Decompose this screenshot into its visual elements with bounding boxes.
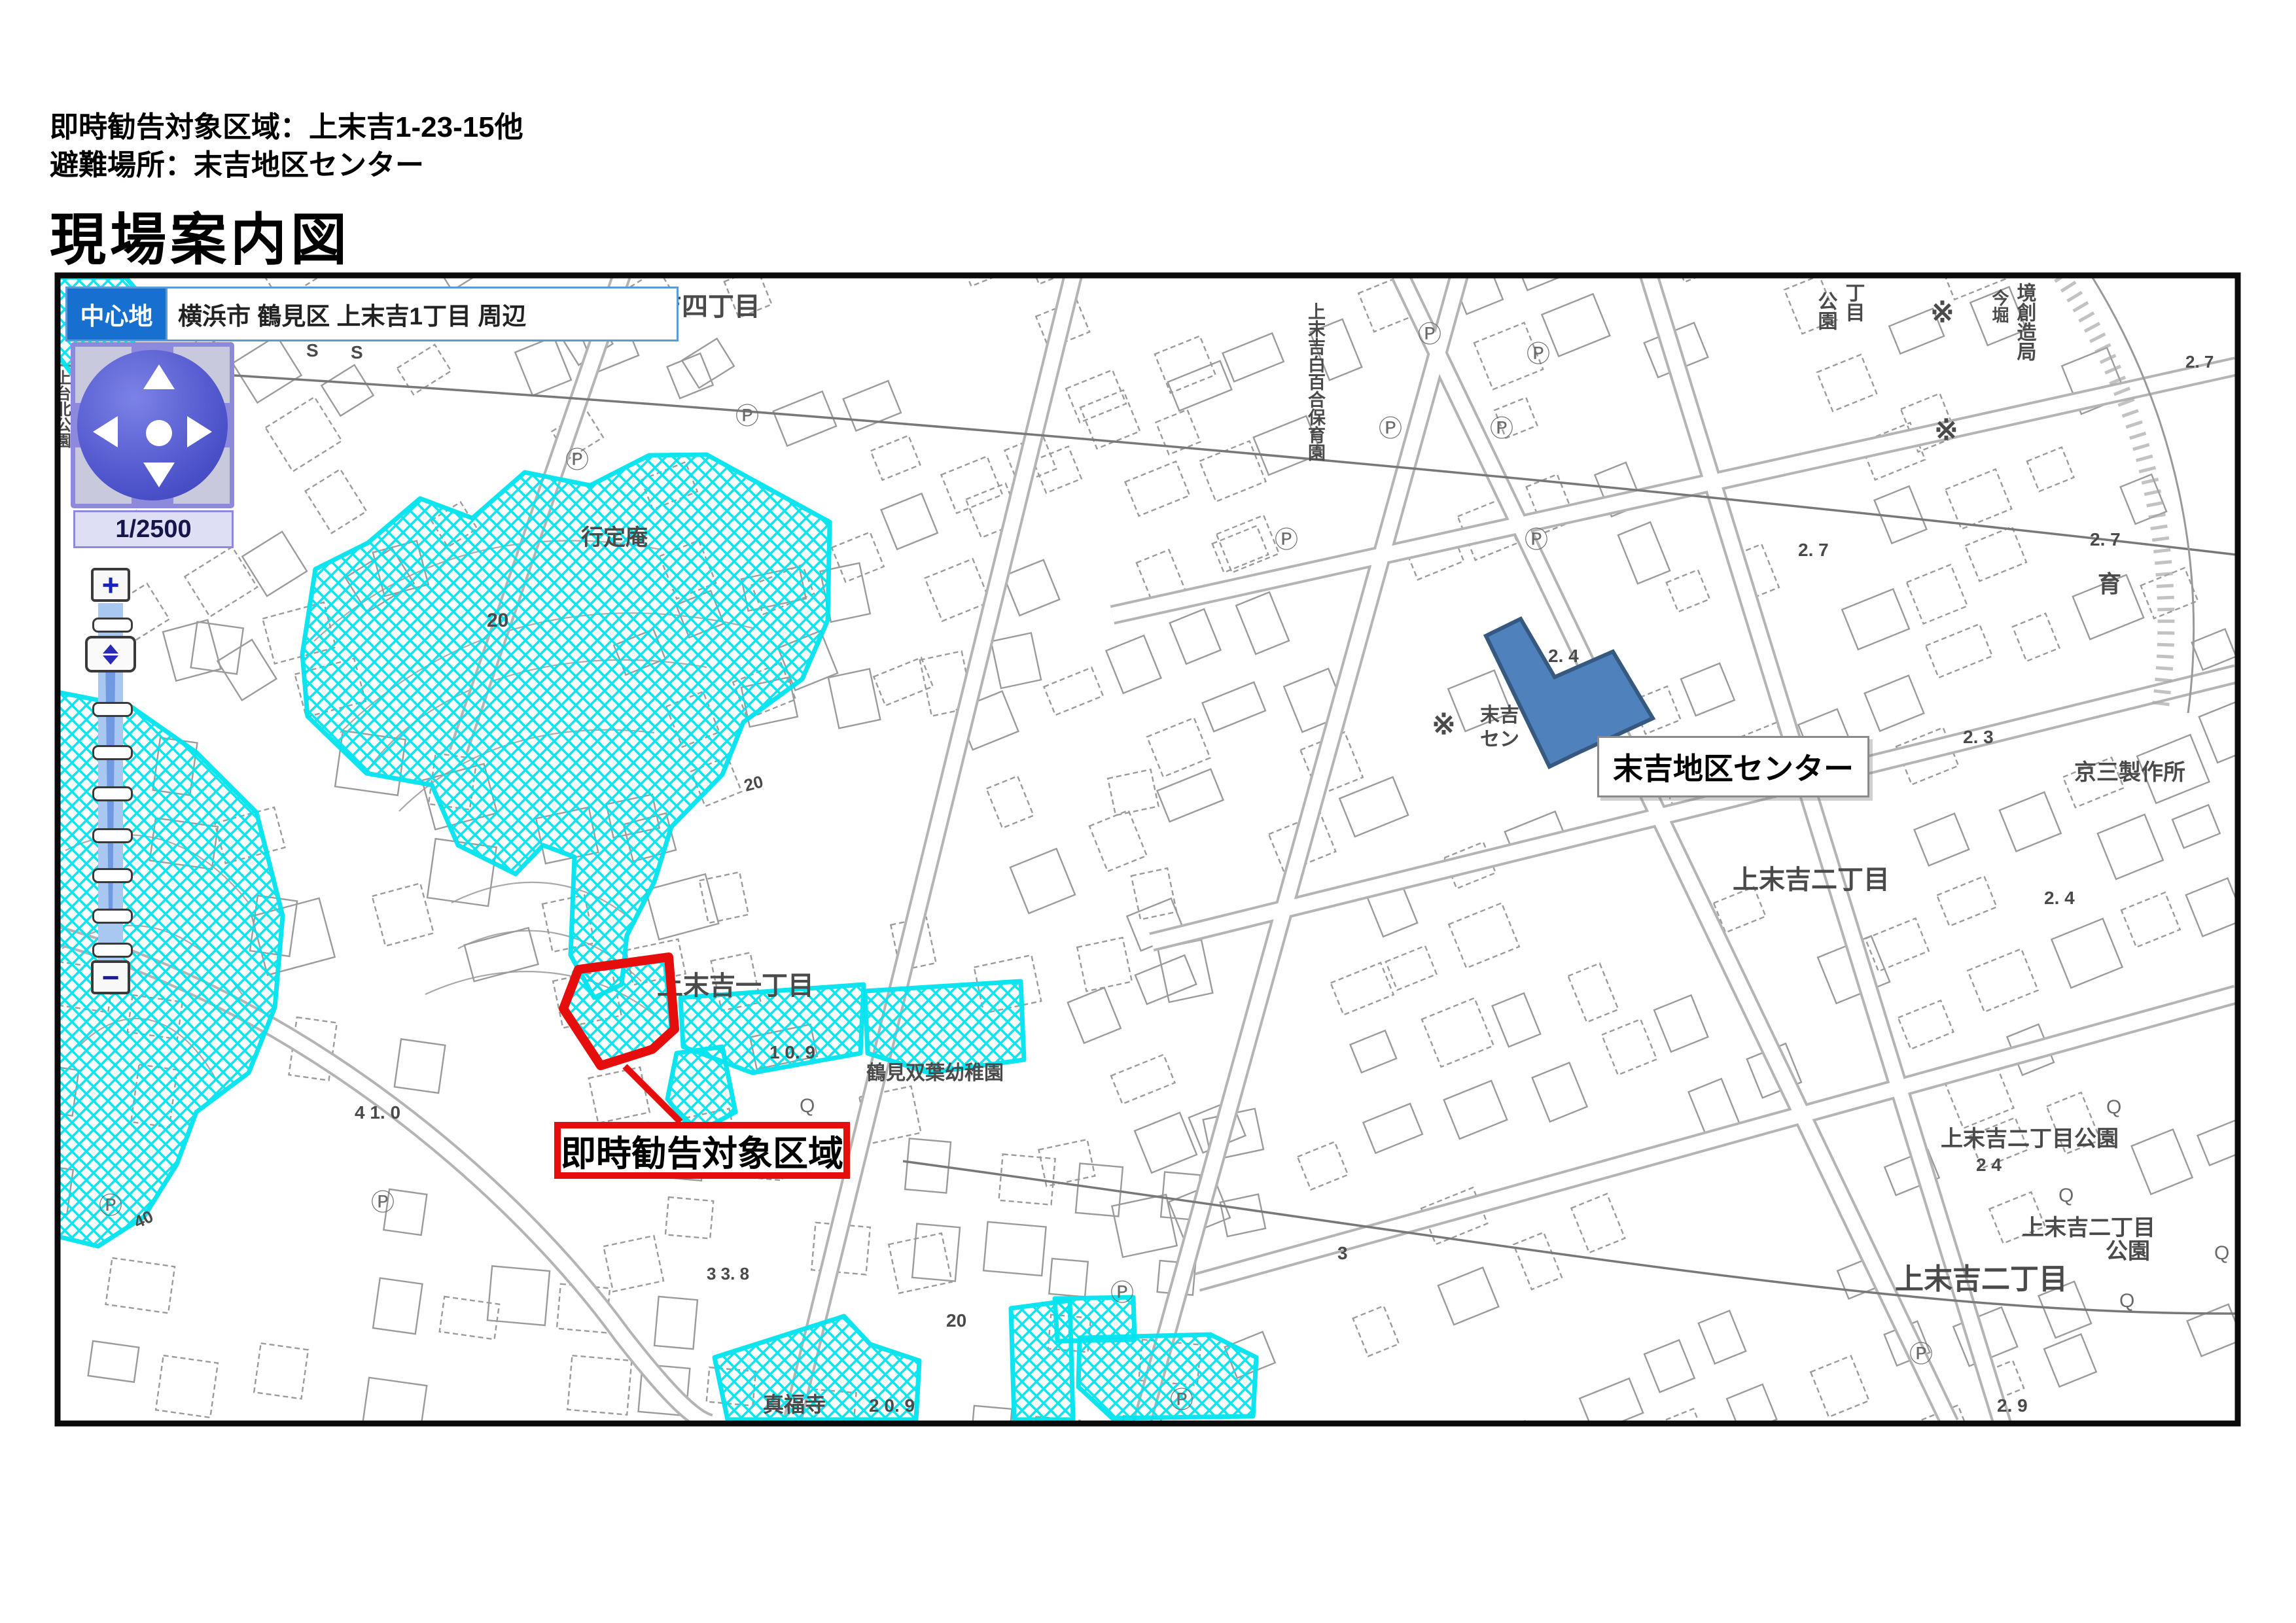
map-label: 4 1. 0: [355, 1102, 400, 1123]
parking-icon: Ⓟ: [1490, 415, 1513, 442]
pan-control[interactable]: [71, 342, 234, 508]
zoom-level-tick[interactable]: [92, 868, 133, 883]
map-label: ※: [1432, 708, 1456, 741]
map-label: ※: [1930, 296, 1954, 328]
map-label: 育: [2098, 570, 2121, 597]
map-label: 公園: [1815, 291, 1838, 330]
map-label: 20: [487, 610, 508, 631]
map-label: 鶴見双葉幼稚園: [866, 1062, 1004, 1084]
handle-up-arrow-icon: [103, 644, 118, 654]
map-canvas[interactable]: 吉四丁目上末吉白百合保育園行定庵2020末吉セン※※※2. 4京三製作所2. 3…: [0, 0, 2296, 1623]
map-label: 2 4: [1976, 1155, 2002, 1175]
parking-icon: Ⓟ: [1909, 1340, 1933, 1367]
map-label: 2. 3: [1963, 727, 1994, 747]
zoom-level-tick[interactable]: [92, 828, 133, 843]
handle-down-arrow-icon: [103, 655, 118, 665]
zoom-level-tick[interactable]: [92, 618, 133, 633]
map-label: 今堀: [1990, 288, 2009, 324]
map-label: 2 0. 9: [869, 1395, 915, 1416]
parking-icon: Ⓟ: [565, 446, 589, 473]
map-label: 上末吉二丁目: [1895, 1263, 2068, 1295]
address-bar: 中心地 横浜市 鶴見区 上末吉1丁目 周辺: [65, 287, 679, 338]
pan-right-button[interactable]: [187, 416, 212, 447]
map-label: 上末吉白百合保育園: [1305, 302, 1326, 461]
map-label: S: [351, 342, 363, 362]
pan-down-button[interactable]: [143, 462, 175, 487]
q-marker-icon: Q: [2106, 1096, 2121, 1118]
zoom-level-tick[interactable]: [92, 745, 133, 760]
map-label: 京三製作所: [2074, 760, 2185, 785]
pan-left-button[interactable]: [93, 416, 118, 447]
zoom-level-tick[interactable]: [92, 943, 133, 958]
map-label: 3: [1337, 1243, 1348, 1263]
map-label: 3 3. 8: [707, 1264, 749, 1283]
map-label: 1 0. 9: [769, 1042, 815, 1062]
pan-wheel[interactable]: [77, 350, 228, 500]
map-label: セン: [1480, 729, 1519, 750]
map-label: 上末吉二丁目: [2022, 1215, 2155, 1240]
center-point-badge: 中心地: [65, 287, 168, 341]
parking-icon: Ⓟ: [1170, 1386, 1193, 1413]
address-text: 横浜市 鶴見区 上末吉1丁目 周辺: [168, 287, 679, 341]
page: 即時勧告対象区域：上末吉1-23-15他 避難場所：末吉地区センター 現場案内図…: [0, 0, 2296, 1623]
map-label: ※: [1934, 414, 1958, 446]
q-marker-icon: Q: [800, 1095, 815, 1117]
map-label: 2. 7: [1798, 540, 1829, 560]
hazard-zone: [865, 981, 1024, 1073]
zoom-in-button[interactable]: +: [91, 568, 130, 602]
q-marker-icon: Q: [2119, 1290, 2134, 1312]
map-label: 2. 4: [1548, 646, 1579, 666]
map-label: 上末吉二丁目: [1733, 865, 1890, 894]
parking-icon: Ⓟ: [1525, 526, 1548, 553]
parking-icon: Ⓟ: [1418, 321, 1441, 347]
map-label: 上末吉一丁目: [657, 971, 814, 1000]
parking-icon: Ⓟ: [1379, 415, 1402, 442]
map-label: 公園: [2106, 1239, 2150, 1264]
zoom-level-tick[interactable]: [92, 702, 133, 717]
q-marker-icon: Q: [2058, 1185, 2074, 1206]
zoom-level-tick[interactable]: [92, 909, 133, 924]
map-label: 境創造局: [2014, 282, 2037, 361]
map-label: 真福寺: [763, 1393, 826, 1416]
hazard-zone: [1078, 1335, 1256, 1418]
map-label: 2. 7: [2090, 529, 2121, 550]
shelter-callout: 末吉地区センター: [1597, 736, 1869, 797]
pan-up-button[interactable]: [143, 364, 175, 389]
map-label: S: [306, 340, 319, 360]
parking-icon: Ⓟ: [1275, 526, 1298, 553]
parking-icon: Ⓟ: [1527, 340, 1550, 367]
pan-center-button[interactable]: [146, 420, 172, 446]
map-label: 2. 7: [2185, 352, 2214, 372]
map-label: 末吉: [1480, 705, 1519, 726]
zoom-out-button[interactable]: −: [91, 960, 130, 994]
parking-icon: Ⓟ: [371, 1189, 395, 1215]
zoom-slider-handle[interactable]: [85, 636, 136, 672]
map-label: 20: [946, 1310, 966, 1331]
map-label: 上末吉二丁目公園: [1941, 1126, 2119, 1151]
map-label: 2. 9: [1997, 1395, 2028, 1416]
parking-icon: Ⓟ: [735, 402, 759, 429]
map-label: 丁目: [1843, 283, 1865, 322]
parking-icon: Ⓟ: [99, 1192, 122, 1219]
map-label: 行定庵: [581, 525, 648, 550]
target-area-callout: 即時勧告対象区域: [554, 1122, 850, 1179]
map-label: 2. 4: [2044, 888, 2075, 908]
scale-indicator: 1/2500: [73, 510, 234, 548]
zoom-level-tick[interactable]: [92, 786, 133, 801]
q-marker-icon: Q: [2214, 1242, 2229, 1264]
parking-icon: Ⓟ: [1110, 1279, 1134, 1306]
